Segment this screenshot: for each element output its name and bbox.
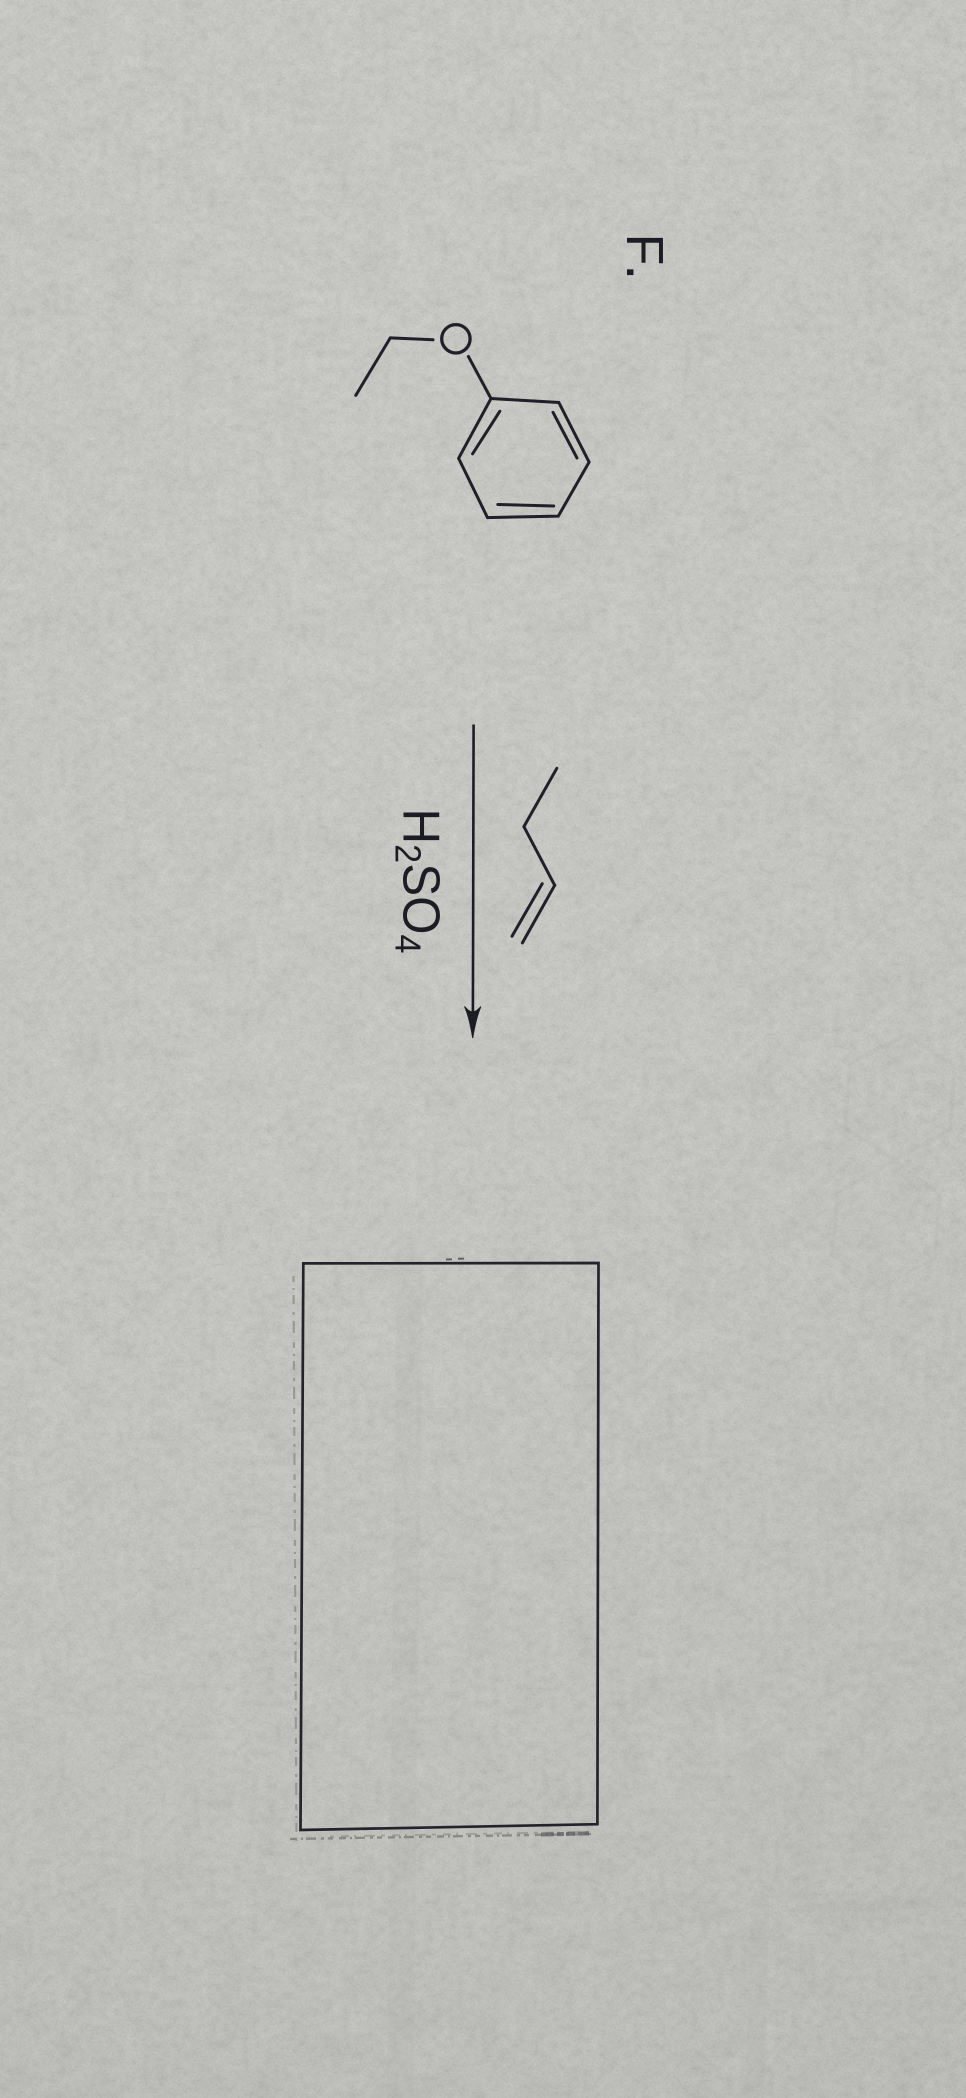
svg-text:H2SO4: H2SO4 [387, 809, 450, 954]
svg-text:F: F [615, 234, 673, 266]
svg-text:.: . [614, 264, 681, 281]
